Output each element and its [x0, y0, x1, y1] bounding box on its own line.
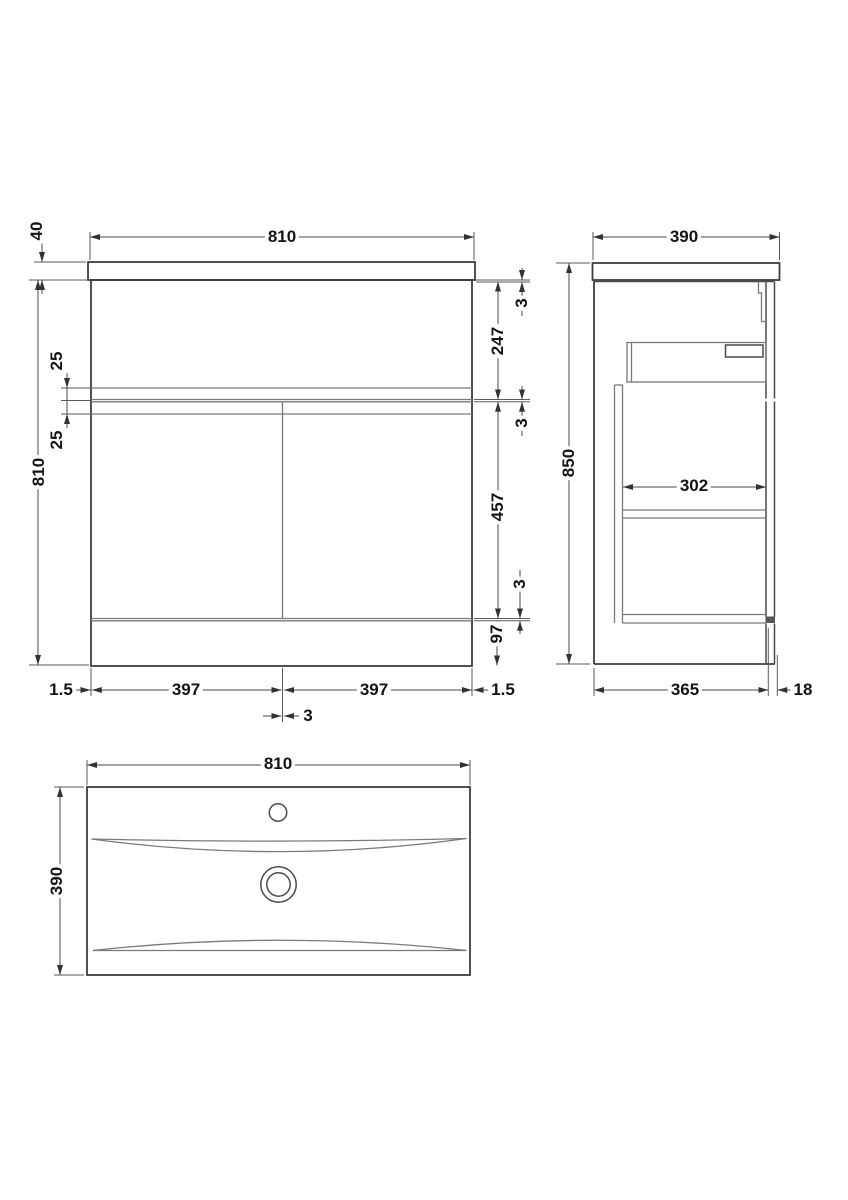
waste-hole-inner	[267, 873, 290, 896]
side-basin-clip-profile	[759, 282, 767, 322]
plan-view-extension-lines	[54, 760, 470, 975]
side-door-bottom-edge	[766, 617, 776, 624]
dim-front-centre-gap: 3	[300, 707, 315, 725]
front-carcass	[91, 280, 472, 666]
dim-front-mid-gap: 3	[513, 415, 531, 430]
side-front-panel	[766, 282, 776, 665]
side-view-extension-lines	[556, 232, 780, 696]
dim-front-worktop-thickness: 40	[28, 219, 46, 244]
dim-side-internal-depth: 302	[677, 477, 711, 495]
dim-side-door-thickness: 18	[791, 681, 816, 699]
dim-side-carcass-depth: 365	[668, 681, 702, 699]
drawing-geometry	[0, 0, 848, 1200]
side-drawer-box	[627, 343, 766, 383]
technical-drawing-canvas: 810 40 810 25 25 3 247 3 457 3 97 1.5 39…	[0, 0, 848, 1200]
dim-front-door-groove: 25	[48, 428, 66, 453]
side-shelf	[623, 510, 767, 518]
basin-rear-ledge-curve	[93, 940, 467, 950]
dim-side-overall-depth: 390	[667, 228, 701, 246]
dim-front-overall-width: 810	[265, 228, 299, 246]
plan-view-dimension-lines	[60, 765, 470, 975]
side-worktop	[593, 263, 780, 280]
plan-view	[87, 787, 470, 975]
plan-basin-outline	[87, 787, 470, 975]
dim-plan-basin-width: 810	[261, 755, 295, 773]
side-back-panel	[615, 385, 623, 623]
front-worktop	[88, 262, 475, 280]
dim-front-bottom-gap: 3	[511, 576, 529, 591]
side-bottom-panel	[623, 615, 767, 624]
dim-front-plinth-height: 97	[488, 622, 506, 647]
dim-front-right-door-width: 397	[357, 681, 391, 699]
dim-side-overall-height: 850	[560, 446, 578, 480]
dim-front-door-height: 457	[489, 490, 507, 524]
front-view	[88, 262, 475, 666]
dim-front-drawer-height: 247	[489, 324, 507, 358]
dim-front-carcass-height: 810	[30, 455, 48, 489]
dim-front-left-gap: 1.5	[46, 681, 76, 699]
dim-front-right-gap: 1.5	[488, 681, 518, 699]
dim-front-top-gap: 3	[513, 295, 531, 310]
front-view-extension-lines	[29, 232, 530, 722]
front-view-dimension-lines	[38, 237, 522, 716]
side-drawer-handle-recess	[726, 345, 764, 357]
side-view	[593, 263, 780, 664]
dim-plan-basin-depth: 390	[48, 864, 66, 898]
basin-front-ledge-upper-curve	[92, 839, 467, 842]
dim-front-left-door-width: 397	[169, 681, 203, 699]
tap-hole	[269, 804, 286, 821]
dim-front-drawer-groove: 25	[48, 349, 66, 374]
